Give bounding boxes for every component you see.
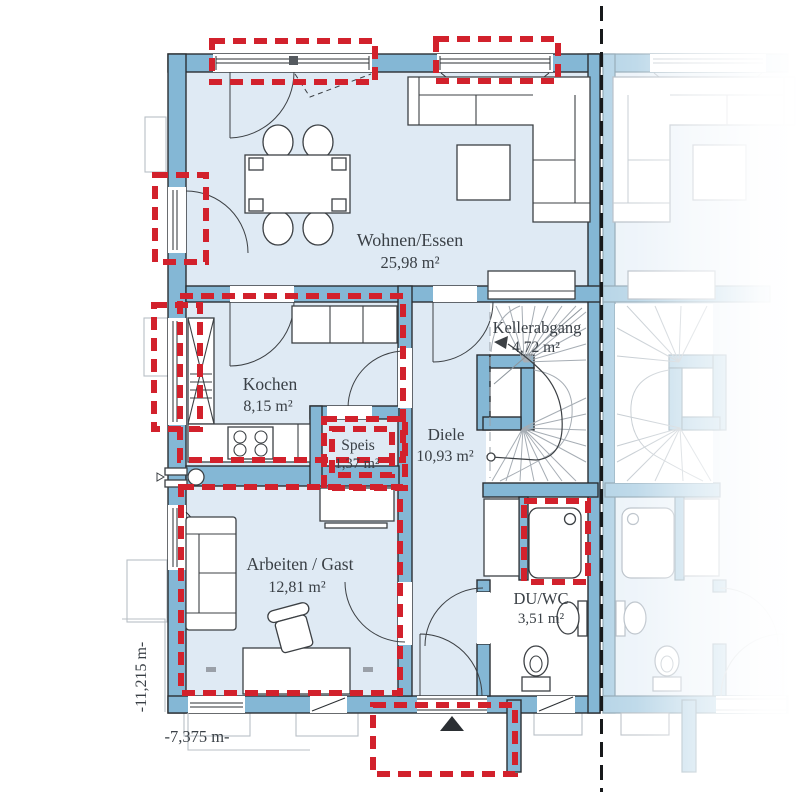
window-sill xyxy=(145,117,166,172)
entrance-arrow xyxy=(440,716,464,731)
sideboard xyxy=(488,271,575,299)
floorplan-svg: -11,215 m- -7,375 m- Wohnen/Essen 25,98 … xyxy=(0,0,800,800)
dining-chair xyxy=(263,125,293,159)
room-area-wohnen: 25,98 m² xyxy=(380,253,439,272)
stove xyxy=(228,427,273,459)
floorplan-canvas: -11,215 m- -7,375 m- Wohnen/Essen 25,98 … xyxy=(0,0,800,800)
window-sill xyxy=(534,713,582,735)
room-area-arbeiten: 12,81 m² xyxy=(268,579,325,596)
highlight-entrance-porch xyxy=(373,705,515,774)
wall-diele-duwc xyxy=(477,580,490,592)
dimension-depth: -11,215 m- xyxy=(133,642,150,713)
room-area-duwc: 3,51 m² xyxy=(518,611,565,627)
wardrobe xyxy=(320,488,394,521)
room-label-diele: Diele xyxy=(428,425,465,444)
room-label-arbeiten: Arbeiten / Gast xyxy=(247,554,354,574)
window-sill xyxy=(296,713,358,736)
closet xyxy=(484,499,519,576)
dining-chair xyxy=(303,125,333,159)
wall-stair-bath xyxy=(483,483,598,497)
terrace-step xyxy=(127,560,167,622)
fade-overlay xyxy=(600,0,800,800)
wall-speis-left xyxy=(310,406,322,486)
room-area-diele: 10,93 m² xyxy=(416,448,473,465)
door-kochen xyxy=(230,286,294,302)
coffee-table xyxy=(457,145,510,200)
desk xyxy=(243,648,350,694)
room-label-speis: Speis xyxy=(341,437,375,454)
toilet-tank xyxy=(522,677,550,691)
room-label-kochen: Kochen xyxy=(243,374,298,394)
dimension-width: -7,375 m- xyxy=(164,727,229,746)
room-label-kellerabgang: Kellerabgang xyxy=(493,318,582,337)
door-duwc xyxy=(477,592,490,644)
room-area-kochen: 8,15 m² xyxy=(243,398,292,415)
room-label-duwc: DU/WC xyxy=(514,589,569,608)
dining-chair xyxy=(303,211,333,245)
door-diele xyxy=(433,286,477,302)
window-arbeiten-bottom xyxy=(188,696,245,713)
room-label-wohnen: Wohnen/Essen xyxy=(357,230,464,250)
kitchen-cabinets xyxy=(292,306,397,343)
dining-chair xyxy=(263,211,293,245)
shower-drain xyxy=(565,514,576,525)
room-area-speis: 1,37 m² xyxy=(335,456,380,472)
room-area-kellerabgang: 4,72 m² xyxy=(512,339,560,356)
walkline-start xyxy=(487,453,495,461)
